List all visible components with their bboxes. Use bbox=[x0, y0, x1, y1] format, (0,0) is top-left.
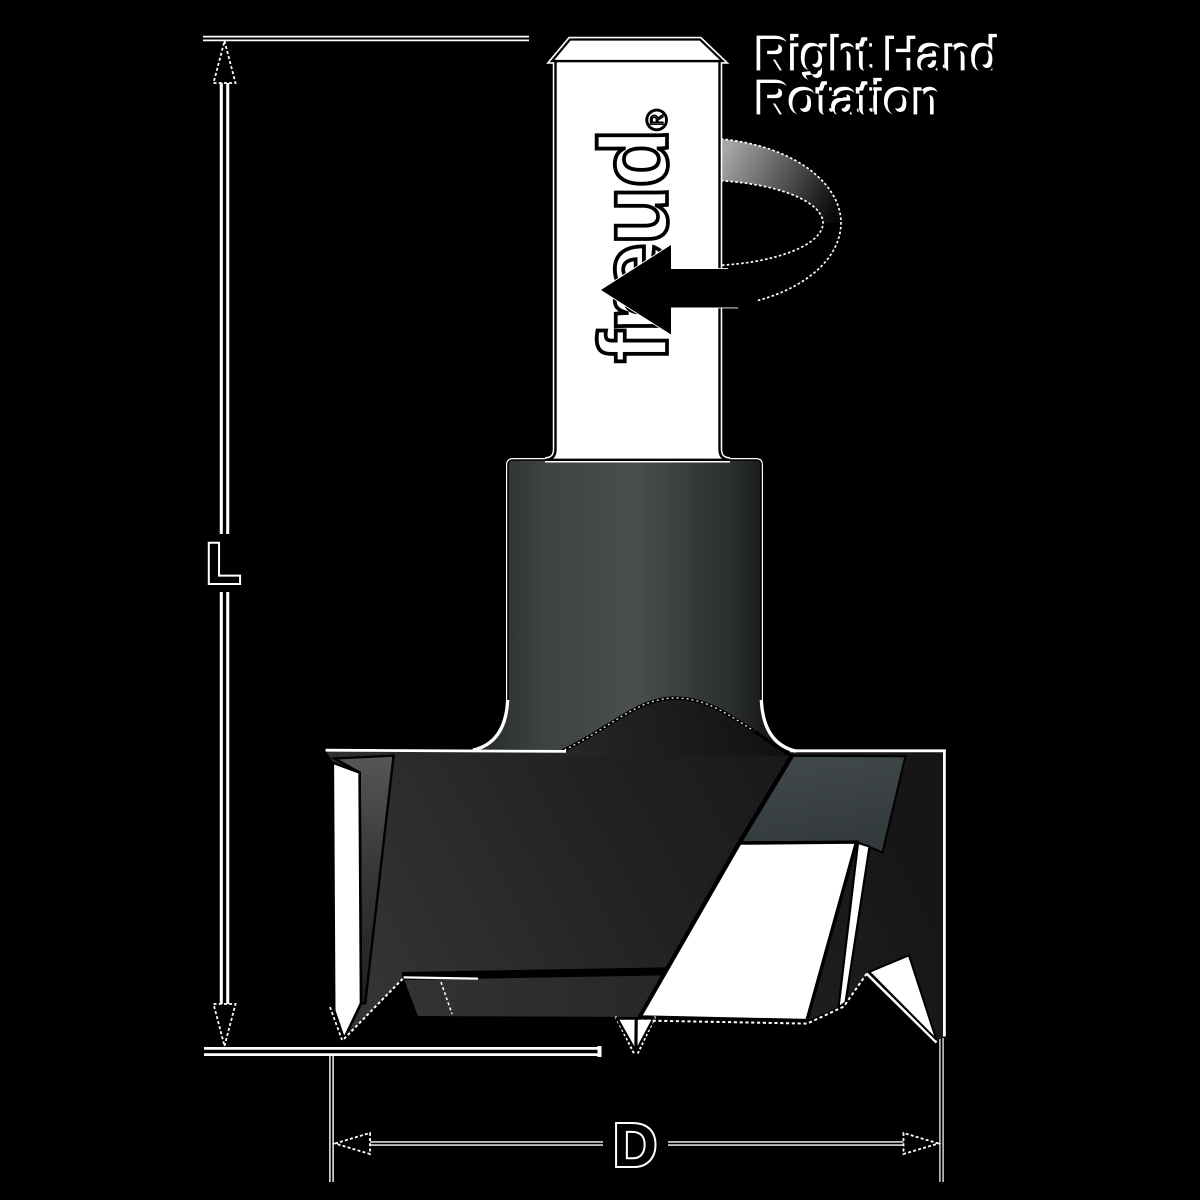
svg-text:L: L bbox=[206, 532, 241, 596]
svg-text:D: D bbox=[613, 1111, 657, 1179]
svg-text:Rotation: Rotation bbox=[757, 74, 942, 127]
svg-text:®: ® bbox=[641, 109, 674, 131]
